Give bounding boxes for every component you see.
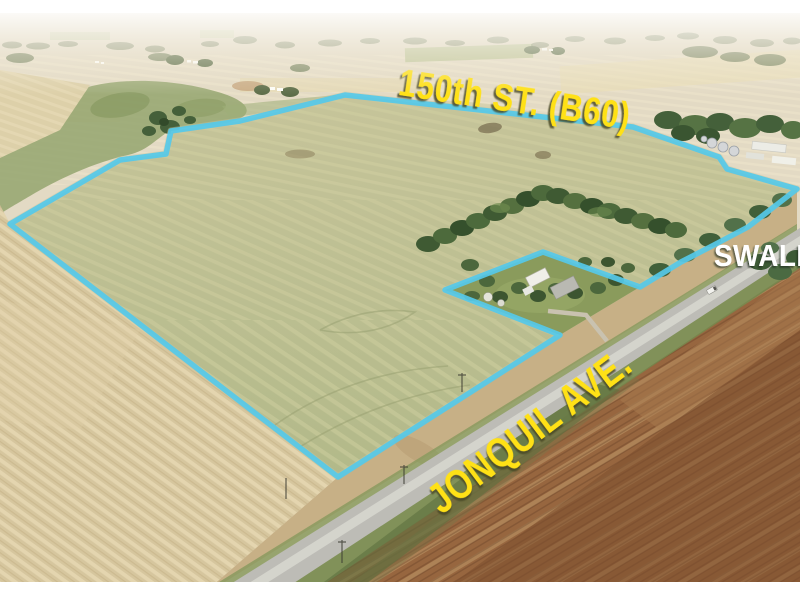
swale-label: SWALE [714, 239, 800, 274]
aerial-photo-canvas: 150th ST. (B60) JONQUIL AVE. SWALE [0, 0, 800, 600]
grain-tank [498, 300, 505, 307]
aerial-photo: 150th ST. (B60) JONQUIL AVE. SWALE [0, 0, 800, 600]
bare-soil-patch [535, 151, 551, 159]
photo-frame-top [0, 0, 800, 13]
swale-label-text: SWALE [714, 239, 800, 274]
horizon-haze [0, 8, 800, 98]
bare-soil-patch [285, 150, 315, 159]
grain-tank [484, 293, 493, 302]
photo-frame-bottom [0, 582, 800, 600]
